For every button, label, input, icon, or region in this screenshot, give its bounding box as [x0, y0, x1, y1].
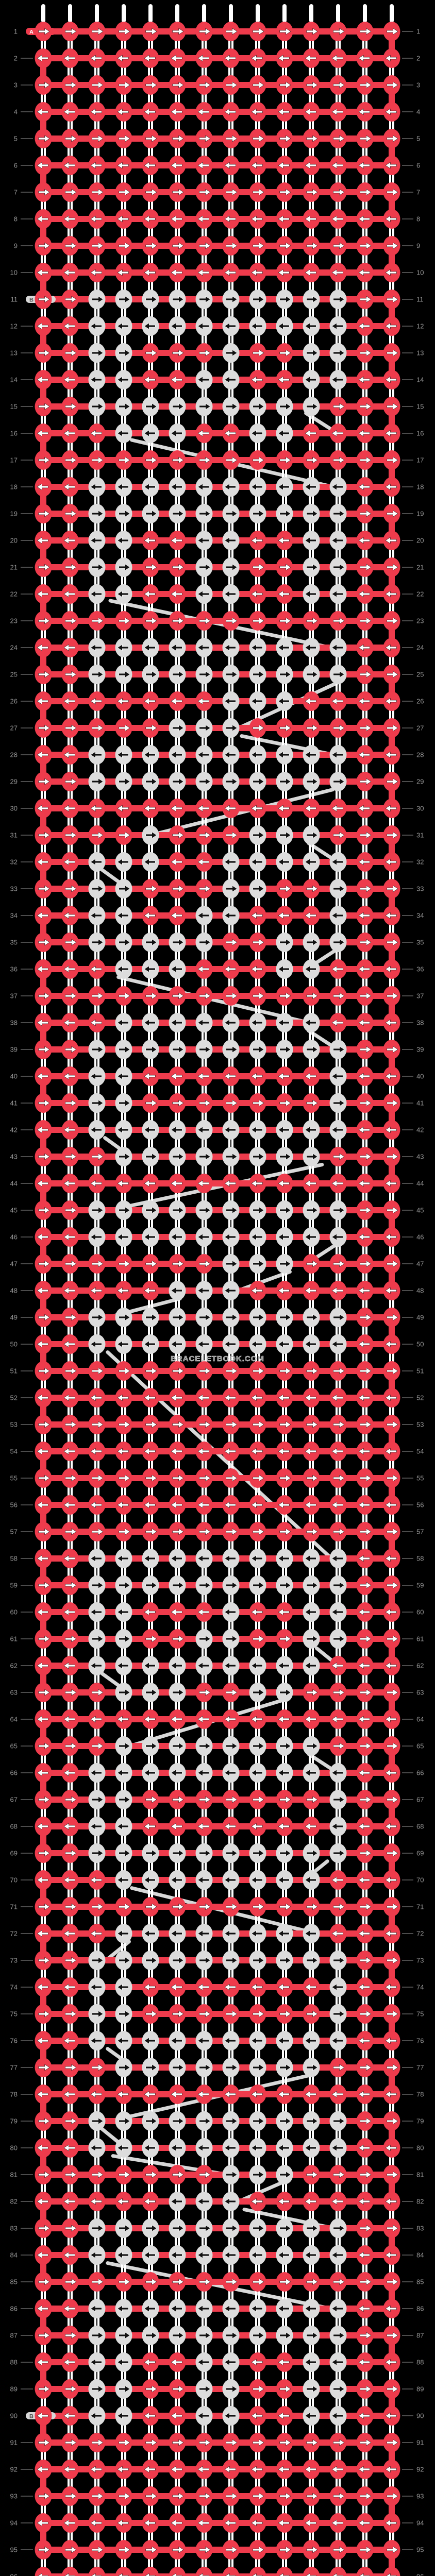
row-number-left: 66	[10, 1769, 18, 1777]
red-knot-bead	[196, 1415, 213, 1434]
red-knot-bead	[35, 1736, 52, 1756]
red-knot-bead	[383, 852, 400, 872]
red-knot-bead	[303, 102, 320, 122]
row-number-left: 50	[10, 1341, 18, 1348]
row-number-right: 36	[416, 965, 424, 973]
white-knot-bead	[303, 1656, 320, 1675]
red-knot-bead	[357, 1227, 374, 1247]
red-knot-bead	[196, 1254, 213, 1274]
red-knot-bead	[62, 1442, 79, 1461]
red-knot-bead	[196, 2540, 213, 2560]
red-knot-bead	[196, 1361, 213, 1381]
white-knot-bead	[196, 1924, 213, 1943]
white-knot-bead	[223, 2031, 240, 2050]
white-knot-bead	[330, 584, 347, 604]
red-knot-bead	[35, 799, 52, 818]
red-knot-bead	[89, 1281, 106, 1300]
red-knot-bead	[35, 1281, 52, 1300]
row-number-left: 29	[10, 778, 18, 786]
white-knot-bead	[196, 2192, 213, 2211]
red-knot-bead	[303, 2192, 320, 2211]
red-knot-bead	[142, 1897, 159, 1917]
red-knot-bead	[303, 129, 320, 148]
red-knot-bead	[35, 2352, 52, 2372]
red-knot-bead	[35, 1763, 52, 1783]
white-knot-bead	[196, 1040, 213, 1059]
red-knot-bead	[62, 343, 79, 363]
red-knot-bead	[249, 2567, 266, 2576]
row-number-right: 70	[416, 1876, 424, 1884]
white-knot-bead	[115, 2058, 132, 2077]
bead-shape	[303, 2567, 320, 2576]
red-knot-bead	[383, 1388, 400, 1408]
white-knot-bead	[249, 1120, 266, 1140]
white-knot-bead	[249, 2299, 266, 2318]
row-number-left: 48	[10, 1287, 18, 1295]
row-number-left: 82	[10, 2198, 18, 2206]
red-knot-bead	[357, 1200, 374, 1220]
red-knot-bead	[169, 1495, 186, 1515]
white-knot-bead	[115, 852, 132, 872]
white-knot-bead	[89, 557, 106, 577]
red-knot-bead	[196, 1709, 213, 1729]
red-knot-bead	[383, 1897, 400, 1917]
red-knot-bead	[276, 1790, 293, 1809]
red-knot-bead	[357, 557, 374, 577]
bead-shape	[383, 2567, 400, 2576]
white-knot-bead	[89, 1629, 106, 1649]
red-knot-bead	[303, 799, 320, 818]
red-knot-bead	[357, 22, 374, 41]
white-knot-bead	[142, 477, 159, 497]
red-knot-bead	[89, 129, 106, 148]
red-knot-bead	[276, 2192, 293, 2211]
row-number-left: 4	[14, 108, 18, 116]
red-knot-bead	[89, 611, 106, 631]
red-knot-bead	[115, 611, 132, 631]
red-knot-bead	[303, 1281, 320, 1300]
red-knot-bead	[357, 933, 374, 952]
red-knot-bead	[357, 2004, 374, 2024]
red-knot-bead	[357, 2111, 374, 2131]
red-knot-bead	[142, 1174, 159, 1193]
white-knot-bead	[276, 2218, 293, 2238]
red-knot-bead	[276, 209, 293, 229]
white-knot-bead	[276, 1870, 293, 1890]
red-knot-bead	[383, 1066, 400, 1086]
red-knot-bead	[35, 557, 52, 577]
white-knot-bead	[249, 1200, 266, 1220]
red-knot-bead	[249, 1093, 266, 1113]
row-number-left: 7	[14, 189, 18, 196]
red-knot-bead	[276, 129, 293, 148]
row-number-left: 46	[10, 1233, 18, 1241]
red-knot-bead	[249, 1066, 266, 1086]
red-knot-bead	[89, 1254, 106, 1274]
white-knot-bead	[223, 397, 240, 416]
white-knot-bead	[169, 1040, 186, 1059]
row-number-left: 73	[10, 1957, 18, 1964]
red-knot-bead	[383, 772, 400, 791]
white-knot-bead	[223, 1843, 240, 1863]
red-knot-bead	[276, 450, 293, 470]
white-knot-bead	[249, 1924, 266, 1943]
red-knot-bead	[303, 1361, 320, 1381]
white-knot-bead	[223, 718, 240, 738]
white-knot-bead	[330, 852, 347, 872]
red-knot-bead	[35, 2084, 52, 2104]
red-knot-bead	[89, 209, 106, 229]
row-number-right: 90	[416, 2412, 424, 2420]
white-knot-bead	[115, 2326, 132, 2345]
white-knot-bead	[115, 290, 132, 309]
red-knot-bead	[357, 1870, 374, 1890]
white-knot-bead	[303, 852, 320, 872]
row-number-right: 84	[416, 2251, 424, 2259]
red-knot-bead	[383, 236, 400, 256]
red-knot-bead	[142, 1066, 159, 1086]
red-knot-bead	[303, 2513, 320, 2533]
white-knot-bead	[142, 1843, 159, 1863]
white-knot-bead	[249, 879, 266, 899]
white-knot-bead	[115, 1790, 132, 1809]
red-knot-bead	[35, 75, 52, 95]
white-knot-bead	[303, 1147, 320, 1166]
row-number-right: 44	[416, 1180, 424, 1188]
red-knot-bead	[115, 236, 132, 256]
red-knot-bead	[383, 2058, 400, 2077]
red-knot-bead	[330, 1656, 347, 1675]
row-number-right: 82	[416, 2198, 424, 2206]
white-knot-bead	[115, 1013, 132, 1032]
white-knot-bead	[115, 1977, 132, 1997]
red-knot-bead	[169, 906, 186, 925]
row-number-left: 55	[10, 1475, 18, 1482]
red-knot-bead	[169, 450, 186, 470]
red-knot-bead	[330, 22, 347, 41]
white-knot-bead	[142, 772, 159, 791]
row-number-left: 90	[10, 2412, 18, 2420]
red-knot-bead	[169, 2406, 186, 2426]
red-knot-bead	[196, 1495, 213, 1515]
red-knot-bead	[330, 182, 347, 202]
red-knot-bead	[115, 263, 132, 282]
row-guide-line	[21, 31, 413, 2576]
white-knot-bead	[249, 745, 266, 765]
red-knot-bead	[35, 2272, 52, 2292]
red-knot-bead	[357, 129, 374, 148]
red-knot-bead	[383, 531, 400, 550]
red-knot-bead	[62, 2138, 79, 2158]
white-knot-bead	[303, 370, 320, 389]
white-knot-bead	[223, 745, 240, 765]
white-knot-bead	[303, 477, 320, 497]
red-knot-bead	[383, 691, 400, 711]
red-knot-bead	[35, 1388, 52, 1408]
row-number-left: 24	[10, 644, 18, 652]
red-knot-bead	[249, 2406, 266, 2426]
red-knot-bead	[62, 1951, 79, 1970]
red-knot-bead	[62, 2352, 79, 2372]
red-knot-bead	[35, 1897, 52, 1917]
red-knot-bead	[35, 986, 52, 1006]
red-knot-bead	[35, 1254, 52, 1274]
white-knot-bead	[223, 1120, 240, 1140]
red-knot-bead	[383, 1790, 400, 1809]
red-knot-bead	[89, 2540, 106, 2560]
white-knot-bead	[330, 638, 347, 657]
row-number-left: 70	[10, 1876, 18, 1884]
red-knot-bead	[62, 584, 79, 604]
red-knot-bead	[357, 2031, 374, 2050]
white-knot-bead	[303, 2058, 320, 2077]
red-knot-bead	[142, 1093, 159, 1113]
red-knot-bead	[383, 102, 400, 122]
red-knot-bead	[330, 1415, 347, 1434]
red-knot-bead	[383, 1709, 400, 1729]
red-knot-bead	[89, 1468, 106, 1488]
red-knot-bead	[89, 959, 106, 979]
red-knot-bead	[357, 986, 374, 1006]
bead-shape	[276, 2567, 293, 2576]
row-number-right: 13	[416, 349, 424, 357]
red-knot-bead	[89, 1361, 106, 1381]
row-number-left: 35	[10, 939, 18, 946]
white-knot-bead	[142, 1924, 159, 1943]
white-knot-bead	[223, 772, 240, 791]
row-number-left: 86	[10, 2305, 18, 2313]
white-knot-bead	[303, 584, 320, 604]
red-knot-bead	[303, 2165, 320, 2184]
white-knot-bead	[89, 1066, 106, 1086]
white-knot-bead	[303, 1200, 320, 1220]
red-knot-bead	[357, 1495, 374, 1515]
red-knot-bead	[223, 236, 240, 256]
white-knot-bead	[330, 1066, 347, 1086]
red-knot-bead	[142, 906, 159, 925]
red-knot-bead	[383, 1200, 400, 1220]
row-number-right: 75	[416, 2010, 424, 2018]
red-knot-bead	[169, 2379, 186, 2399]
red-knot-bead	[35, 504, 52, 523]
red-knot-bead	[383, 1683, 400, 1702]
red-knot-bead	[169, 1442, 186, 1461]
red-knot-bead	[357, 1415, 374, 1434]
white-knot-bead	[142, 1575, 159, 1595]
red-knot-bead	[115, 2486, 132, 2506]
red-knot-bead	[35, 370, 52, 389]
red-knot-bead	[35, 236, 52, 256]
red-knot-bead	[89, 799, 106, 818]
red-knot-bead	[62, 2084, 79, 2104]
red-knot-bead	[276, 1361, 293, 1381]
red-knot-bead	[196, 2084, 213, 2104]
red-knot-bead	[115, 2272, 132, 2292]
red-knot-bead	[223, 1066, 240, 1086]
white-knot-bead	[303, 2326, 320, 2345]
red-knot-bead	[383, 2031, 400, 2050]
red-knot-bead	[383, 1281, 400, 1300]
red-knot-bead	[303, 263, 320, 282]
white-knot-bead	[89, 1817, 106, 1836]
white-knot-bead	[303, 1736, 320, 1756]
row-number-left: 22	[10, 590, 18, 598]
row-number-left: 94	[10, 2519, 18, 2527]
white-knot-bead	[169, 2138, 186, 2158]
red-knot-bead	[35, 102, 52, 122]
row-number-right: 94	[416, 2519, 424, 2527]
red-knot-bead	[249, 584, 266, 604]
row-number-left: 26	[10, 698, 18, 705]
red-knot-bead	[62, 2111, 79, 2131]
red-knot-bead	[330, 1897, 347, 1917]
red-knot-bead	[169, 531, 186, 550]
white-knot-bead	[303, 2245, 320, 2265]
white-knot-bead	[142, 397, 159, 416]
red-knot-bead	[35, 1308, 52, 1327]
red-knot-bead	[357, 1575, 374, 1595]
red-knot-bead	[142, 129, 159, 148]
red-knot-bead	[223, 1388, 240, 1408]
red-knot-bead	[276, 2272, 293, 2292]
red-knot-bead	[223, 2540, 240, 2560]
red-knot-bead	[62, 1495, 79, 1515]
red-knot-bead	[383, 1656, 400, 1675]
red-knot-bead	[142, 1468, 159, 1488]
white-knot-bead	[89, 290, 106, 309]
red-knot-bead	[357, 397, 374, 416]
red-knot-bead	[142, 450, 159, 470]
red-knot-bead	[303, 879, 320, 899]
red-knot-bead	[35, 1870, 52, 1890]
row-number-right: 89	[416, 2385, 424, 2393]
row-number-left: 47	[10, 1260, 18, 1268]
white-knot-bead	[223, 504, 240, 523]
row-number-right: 50	[416, 1341, 424, 1348]
red-knot-bead	[62, 1763, 79, 1783]
red-knot-bead	[357, 1924, 374, 1943]
red-knot-bead	[383, 1334, 400, 1354]
row-number-right: 3	[416, 81, 420, 89]
white-knot-bead	[249, 1656, 266, 1675]
red-knot-bead	[196, 22, 213, 41]
white-knot-bead	[303, 1763, 320, 1783]
white-knot-bead	[303, 1575, 320, 1595]
white-knot-bead	[169, 2031, 186, 2050]
white-knot-bead	[330, 1040, 347, 1059]
red-knot-bead	[330, 75, 347, 95]
red-knot-bead	[357, 2165, 374, 2184]
red-knot-bead	[303, 22, 320, 41]
red-knot-bead	[330, 1174, 347, 1193]
red-knot-bead	[62, 209, 79, 229]
white-knot-bead	[303, 772, 320, 791]
red-knot-bead	[89, 236, 106, 256]
red-knot-bead	[169, 691, 186, 711]
red-knot-bead	[62, 2004, 79, 2024]
red-knot-bead	[62, 611, 79, 631]
white-knot-bead	[115, 1843, 132, 1863]
red-knot-bead	[276, 370, 293, 389]
white-knot-bead	[142, 504, 159, 523]
white-knot-bead	[142, 959, 159, 979]
white-knot-bead	[249, 1575, 266, 1595]
white-knot-bead	[330, 2111, 347, 2131]
red-knot-bead	[89, 1522, 106, 1541]
red-knot-bead	[223, 450, 240, 470]
red-knot-bead	[330, 1709, 347, 1729]
white-knot-bead	[276, 1254, 293, 1274]
white-knot-bead	[169, 2111, 186, 2131]
row-number-left: 41	[10, 1099, 18, 1107]
red-knot-bead	[383, 1736, 400, 1756]
red-knot-bead	[142, 2513, 159, 2533]
red-knot-bead	[303, 75, 320, 95]
white-knot-bead	[249, 1147, 266, 1166]
white-knot-bead	[89, 2352, 106, 2372]
red-knot-bead	[223, 825, 240, 845]
red-knot-bead	[196, 1897, 213, 1917]
white-knot-bead	[89, 2326, 106, 2345]
red-knot-bead	[357, 1736, 374, 1756]
white-knot-bead	[115, 1683, 132, 1702]
white-knot-bead	[196, 316, 213, 336]
red-knot-bead	[62, 477, 79, 497]
white-knot-bead	[115, 2031, 132, 2050]
red-knot-bead	[35, 1120, 52, 1140]
row-number-left: 9	[14, 242, 18, 250]
white-knot-bead	[223, 906, 240, 925]
red-knot-bead	[142, 1790, 159, 1809]
white-knot-bead	[223, 343, 240, 363]
white-knot-bead	[115, 316, 132, 336]
red-knot-bead	[196, 2004, 213, 2024]
red-knot-bead	[249, 263, 266, 282]
white-knot-bead	[89, 1575, 106, 1595]
white-knot-bead	[249, 397, 266, 416]
red-knot-bead	[276, 1415, 293, 1434]
white-knot-bead	[223, 2218, 240, 2238]
red-knot-bead	[383, 182, 400, 202]
white-knot-bead	[223, 1736, 240, 1756]
row-number-right: 73	[416, 1957, 424, 1964]
red-knot-bead	[196, 959, 213, 979]
red-knot-bead	[383, 2513, 400, 2533]
white-knot-bead	[169, 1736, 186, 1756]
red-knot-bead	[383, 1977, 400, 1997]
white-knot-bead	[169, 745, 186, 765]
white-knot-bead	[276, 1763, 293, 1783]
red-knot-bead	[35, 2111, 52, 2131]
red-knot-bead	[330, 263, 347, 282]
row-number-left: 96	[10, 2573, 18, 2576]
white-knot-bead	[249, 1736, 266, 1756]
white-knot-bead	[303, 557, 320, 577]
row-number-right: 25	[416, 671, 424, 679]
row-number-left: 2	[14, 55, 18, 62]
red-knot-bead	[276, 1093, 293, 1113]
red-knot-bead	[35, 1817, 52, 1836]
red-knot-bead	[303, 2460, 320, 2479]
white-knot-bead	[89, 1200, 106, 1220]
pattern-grid-svg: ABBA 11223344556677889910101111121213131…	[0, 0, 435, 2576]
red-knot-bead	[357, 75, 374, 95]
red-knot-bead	[35, 2218, 52, 2238]
red-knot-bead	[62, 1549, 79, 1568]
red-knot-bead	[142, 531, 159, 550]
red-knot-bead	[330, 691, 347, 711]
red-knot-bead	[383, 1308, 400, 1327]
